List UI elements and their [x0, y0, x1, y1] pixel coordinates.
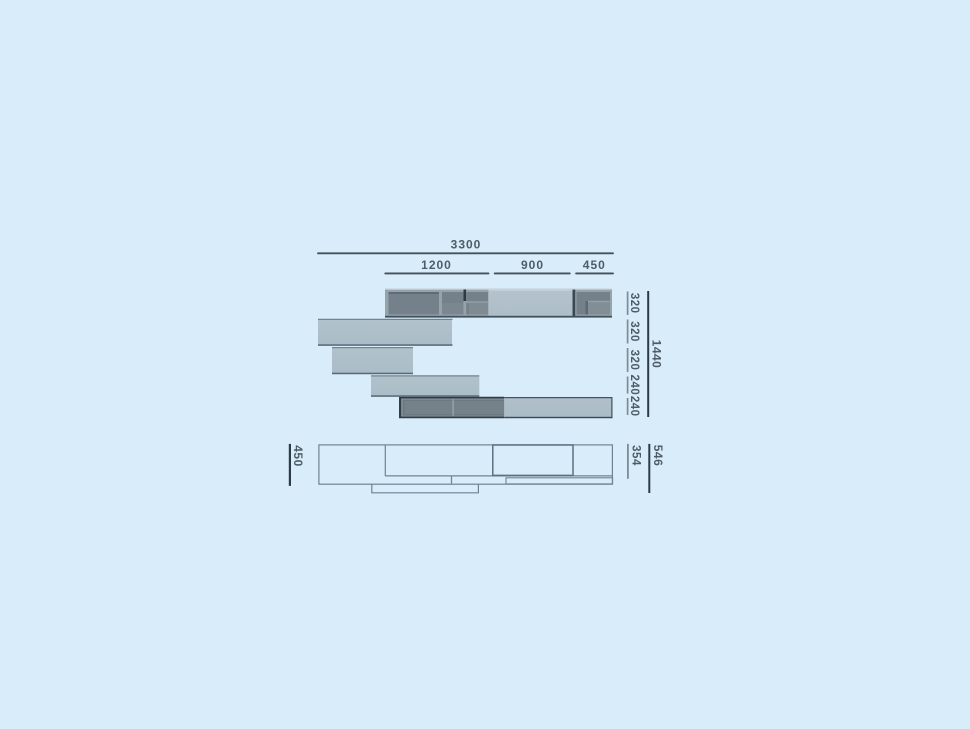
svg-text:320: 320	[628, 293, 640, 314]
svg-text:354: 354	[629, 445, 641, 466]
svg-text:320: 320	[628, 350, 640, 371]
svg-text:1440: 1440	[650, 340, 664, 369]
svg-text:240: 240	[628, 375, 640, 396]
svg-text:450: 450	[583, 258, 606, 272]
svg-text:3300: 3300	[451, 238, 482, 252]
svg-text:1200: 1200	[421, 258, 452, 272]
svg-text:240: 240	[628, 396, 640, 417]
svg-text:546: 546	[651, 445, 665, 467]
svg-text:320: 320	[628, 321, 640, 342]
svg-text:900: 900	[521, 258, 544, 272]
svg-text:450: 450	[291, 445, 305, 467]
